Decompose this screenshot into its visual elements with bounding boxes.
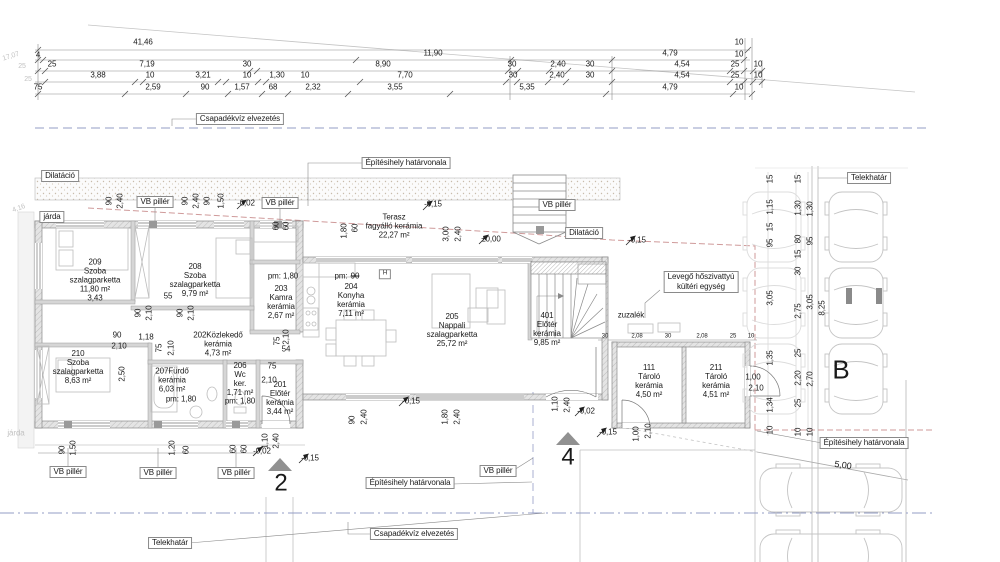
dim: 10 [754,61,763,70]
box-vb-pillar-7: VB pillér [480,465,517,477]
pm-konyha-a: pm: [334,273,347,282]
dim: 55 [164,293,173,302]
box-epitesihely-top: Építésihely határvonala [362,157,451,169]
level: -0,02 [253,448,271,457]
room-205: 205 Nappali szalagparketta 25,72 m² [427,313,478,349]
box-epitesihely-right: Építésihely határvonala [820,437,909,449]
vdim: 1,10 [262,433,271,448]
pm-furdo: pm: 1,80 [166,396,196,405]
dim: 90 [113,332,122,341]
dim: 2,10 [748,385,763,394]
room-206: 206 Wc ker. 1,71 m² [227,362,253,398]
dim-faint: 17,07 [2,51,21,64]
dim: 1,30 [269,72,284,81]
room-207: 207Fürdő kerámia 6,03 m² [155,368,188,395]
vdim: 1,00 [633,426,642,441]
dim: 2,10 [261,377,276,386]
vdim: 90 [106,197,115,206]
box-epitesihely-bottom: Építésihely határvonala [366,477,455,489]
vdim: 95 [807,237,816,246]
room-203: 203 Kamra kerámia 2,67 m² [267,285,295,321]
vdim: 15 [795,250,804,259]
vdim: 15 [795,175,804,184]
vdim: 1,30 [795,200,804,215]
dim: 8,90 [375,61,390,70]
box-csapadekviz-bottom: Csapadékvíz elvezetés [370,528,458,540]
room-201: 201 Előtér kerámia 3,44 m² [266,381,294,417]
vdim: 2,10 [645,423,654,438]
vdim: 1,50 [218,193,227,208]
box-jarda: járda [39,211,64,223]
dim: 7,70 [397,72,412,81]
dim: 54 [282,346,291,355]
vdim: 10 [795,428,804,437]
vdim: 95 [767,239,776,248]
vdim: 3,05 [767,290,776,305]
dim: 10 [301,72,310,81]
vdim: 25 [795,349,804,358]
vdim: 75 [156,344,165,353]
level: ±0,00 [481,236,500,245]
dim: 4,79 [662,84,677,93]
vdim: 2,75 [795,303,804,318]
vdim: 80 [795,235,804,244]
dim: 30 [243,61,252,70]
box-vb-pillar-1: VB pillér [137,196,174,208]
room-202: 202Közlekedő kerámia 4,73 m² [193,332,243,359]
dim-faint: 25 [24,76,32,84]
dim: 4,54 [674,61,689,70]
vdim: 2,40 [273,433,282,448]
room-211: 211 Tároló kerámia 4,51 m² [702,364,730,400]
box-vb-pillar-2: VB pillér [262,197,299,209]
dim: 90 [201,84,210,93]
dim: 30 [665,334,671,341]
vdim: 2,40 [454,409,463,424]
dim: 4,79 [662,50,677,59]
vdim: 90 [135,309,144,318]
dim: 5,35 [519,84,534,93]
dim: 30 [509,72,518,81]
vdim: 10 [807,428,816,437]
vdim: 25 [795,399,804,408]
dim: 10 [735,84,744,93]
level: -0,15 [402,398,420,407]
vdim: 2,10 [168,340,177,355]
box-dilatacio-left: Dilatáció [41,170,79,182]
dim: 10 [754,72,763,81]
label-jarda-faint: járda [7,430,24,439]
letter-B: B [832,355,849,384]
dim: 1,57 [234,84,249,93]
vdim: 2,70 [807,371,816,386]
vdim: 1,20 [169,440,178,455]
dim: 4,54 [674,72,689,81]
dim: 30 [508,61,517,70]
dim: 25 [731,72,740,81]
vdim: 2,20 [795,370,804,385]
floor-plan-canvas: 41,4610411,904,7910257,19308,90302,40304… [0,0,1000,562]
vdim: 2,10 [146,305,155,320]
label-terasz: Terasz fagyálló kerámia 22,27 m² [366,214,423,241]
vdim: 2,40 [193,193,202,208]
vdim: 90 [182,197,191,206]
vdim: 2,40 [361,409,370,424]
level: -0,15 [628,237,646,246]
box-heatpump: Levegő hőszivattyú kültéri egység [664,271,739,293]
vdim: 2,40 [117,193,126,208]
dim: 2,08 [631,334,642,341]
dim: 2,40 [550,61,565,70]
label-zuzalek: zuzalék [618,312,644,321]
dim: 2,40 [549,72,564,81]
vdim: 2,40 [564,397,573,412]
vdim: 1,35 [767,350,776,365]
level: -0,15 [424,201,442,210]
box-csapadekviz-top: Csapadékvíz elvezetés [196,113,284,125]
box-vb-pillar-4: VB pillér [50,466,87,478]
dim: 10 [735,51,744,60]
dim: 2,08 [696,334,707,341]
level: -0,15 [301,455,319,464]
vdim: 10 [767,426,776,435]
dim: 2,10 [111,343,126,352]
dim: 3,55 [387,84,402,93]
room-208: 208 Szoba szalagparketta 9,79 m² [170,263,221,299]
level: -0,02 [237,200,255,209]
vdim: 1,80 [442,409,451,424]
dim: 30 [586,61,595,70]
dim: 1,00 [745,374,760,383]
dim: 68 [269,84,278,93]
room-111: 111 Tároló kerámia 4,50 m² [635,364,663,400]
dim: 7,19 [139,61,154,70]
dim: 25 [730,334,736,341]
box-vb-pillar-6: VB pillér [218,467,255,479]
vdim: 2,40 [455,226,464,241]
mark-H: H [379,269,391,279]
dim: 3,21 [195,72,210,81]
vdim: 90 [204,197,213,206]
vdim: 2,10 [283,329,292,344]
vdim: 2,10 [188,305,197,320]
dim: 75 [268,363,277,372]
vdim: 3,05 [807,294,816,309]
vdim: 3,00 [443,226,452,241]
vdim: 1,15 [767,199,776,214]
dim-total: 41,46 [133,39,153,48]
vdim: 90 [177,309,186,318]
vdim: 2,50 [119,366,128,381]
dim-faint: 25 [18,63,26,71]
vdim: 15 [767,223,776,232]
box-dilatacio-right: Dilatáció [565,227,603,239]
dim: 1,18 [138,334,153,343]
dim: 10 [748,334,754,341]
vdim: 60 [273,222,282,231]
box-telekhatar-top: Telekhatár [847,172,891,184]
vdim: 1,30 [807,201,816,216]
dim: 3,88 [90,72,105,81]
dim: 10 [243,72,252,81]
room-204: 204 Konyha kerámia 7,11 m² [337,283,365,319]
vdim: 1,50 [70,440,79,455]
room-401: 401 Előtér kerámia 9,85 m² [533,312,561,348]
dim: 10 [735,39,744,48]
dim: 25 [48,61,57,70]
vdim: 90 [59,446,68,455]
section-2-number: 2 [274,471,287,498]
vdim: 60 [352,224,361,233]
vdim: 60 [230,445,239,454]
vdim: 30 [795,267,804,276]
dim: 10 [146,72,155,81]
box-vb-pillar-3: VB pillér [539,199,576,211]
slope-dim: 5,00 [834,459,852,471]
pm-kamra: pm: 1,80 [268,273,298,282]
dim: 11,90 [424,50,443,59]
dim: 75 [34,84,43,93]
pm-konyha-b: 90 [351,273,360,282]
dim: 2,59 [145,84,160,93]
pm-wc: pm: 1,80 [225,398,255,407]
vdim: 15 [767,175,776,184]
dim: 4 [36,52,40,61]
room-209: 209 Szoba szalagparketta 11,80 m² 3,43 [70,259,121,304]
room-210: 210 Szoba szalagparketta 8,63 m² [53,350,104,386]
vdim: 60 [241,445,250,454]
box-telekhatar-bottom: Telekhatár [148,537,192,549]
vdim: 1,10 [552,396,561,411]
vdim: 8,25 [819,300,828,315]
vdim: 90 [349,416,358,425]
vdim: 60 [183,446,192,455]
dim: 30 [602,334,608,341]
vdim: 1,80 [341,223,350,238]
dim: 30 [586,72,595,81]
level: -0,15 [599,429,617,438]
dim: 25 [731,61,740,70]
level: -0,02 [577,408,595,417]
plan-labels: 41,4610411,904,7910257,19308,90302,40304… [0,0,1000,562]
box-vb-pillar-5: VB pillér [140,467,177,479]
dim: 2,32 [305,84,320,93]
vdim: 1,34 [767,397,776,412]
dim-faint: 4,16 [11,203,26,215]
vdim: 60 [283,222,292,231]
section-4-number: 4 [561,445,574,472]
